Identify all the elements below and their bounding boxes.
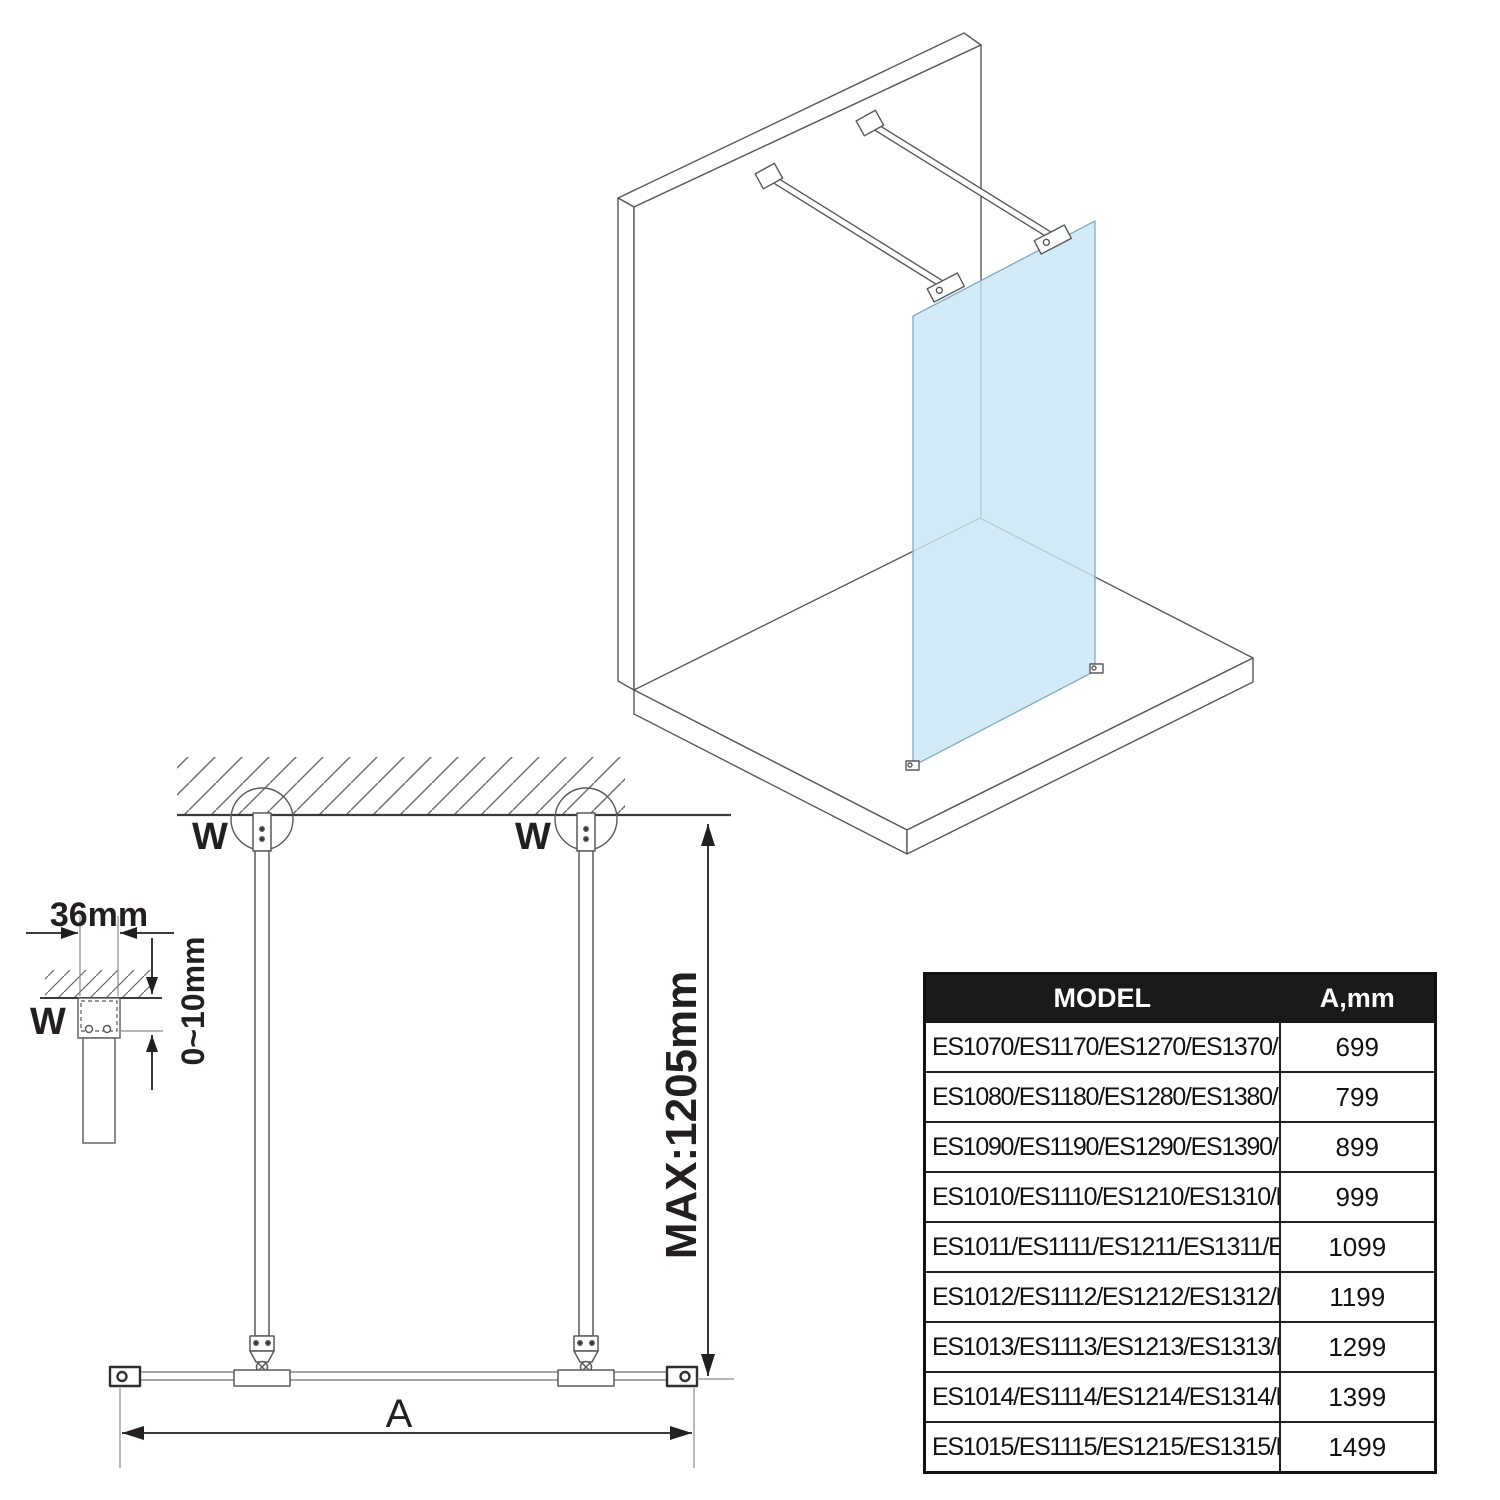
a-mm-cell: 1399	[1280, 1372, 1436, 1422]
support-bar-right-plan	[574, 813, 598, 1373]
model-cell: ES1014/ES1114/ES1214/ES1314/ES1514	[925, 1372, 1280, 1422]
label-wall-marker-left: W	[192, 816, 228, 858]
wall-bracket-detail	[78, 998, 120, 1038]
glass-end-cap-left	[110, 1367, 140, 1386]
glass-foot-right-3d	[1090, 664, 1103, 673]
table-row: ES1013/ES1113/ES1213/ES1313/ES1513 1299	[925, 1322, 1436, 1372]
model-cell: ES1070/ES1170/ES1270/ES1370/ES1570	[925, 1022, 1280, 1072]
a-mm-cell: 699	[1280, 1022, 1436, 1072]
model-cell: ES1090/ES1190/ES1290/ES1390/ES1590	[925, 1122, 1280, 1172]
label-bracket-gap: 0~10mm	[175, 937, 211, 1066]
table-row: ES1015/ES1115/ES1215/ES1315/ES1515 1499	[925, 1422, 1436, 1473]
table-row: ES1014/ES1114/ES1214/ES1314/ES1514 1399	[925, 1372, 1436, 1422]
label-wall-marker-right: W	[515, 816, 551, 858]
support-bar-detail	[83, 1038, 115, 1143]
table-row: ES1011/ES1111/ES1211/ES1311/ES1511 1099	[925, 1222, 1436, 1272]
model-cell: ES1010/ES1110/ES1210/ES1310/ES1510	[925, 1172, 1280, 1222]
a-mm-cell: 1499	[1280, 1422, 1436, 1473]
label-bracket-width: 36mm	[50, 896, 148, 934]
technical-drawing-page: 36mm 0~10mm W W W MAX:1205mm A MODEL A,m…	[0, 0, 1500, 1500]
label-max-bar-length: MAX:1205mm	[657, 971, 706, 1260]
model-cell: ES1012/ES1112/ES1212/ES1312/ES1512	[925, 1272, 1280, 1322]
glass-clamp-left-plan	[234, 1370, 290, 1386]
table-header-row: MODEL A,mm	[925, 974, 1436, 1023]
support-bar-left-plan	[250, 813, 274, 1373]
glass-foot-left-3d	[906, 761, 919, 770]
glass-clamp-right-plan	[558, 1370, 614, 1386]
a-mm-cell: 1199	[1280, 1272, 1436, 1322]
model-size-table: MODEL A,mm ES1070/ES1170/ES1270/ES1370/E…	[923, 972, 1434, 1474]
model-cell: ES1080/ES1180/ES1280/ES1380/ES1580	[925, 1072, 1280, 1122]
table-header-a-mm: A,mm	[1280, 974, 1436, 1023]
isometric-view	[618, 33, 1253, 854]
table-row: ES1090/ES1190/ES1290/ES1390/ES1590 899	[925, 1122, 1436, 1172]
glass-panel-3d	[913, 221, 1095, 766]
model-cell: ES1011/ES1111/ES1211/ES1311/ES1511	[925, 1222, 1280, 1272]
table-row: ES1012/ES1112/ES1212/ES1312/ES1512 1199	[925, 1272, 1436, 1322]
a-mm-cell: 1099	[1280, 1222, 1436, 1272]
a-mm-cell: 1299	[1280, 1322, 1436, 1372]
model-cell: ES1013/ES1113/ES1213/ES1313/ES1513	[925, 1322, 1280, 1372]
model-cell: ES1015/ES1115/ES1215/ES1315/ES1515	[925, 1422, 1280, 1473]
wall-hatch-detail	[45, 970, 153, 998]
table-row: ES1010/ES1110/ES1210/ES1310/ES1510 999	[925, 1172, 1436, 1222]
table-row: ES1080/ES1180/ES1280/ES1380/ES1580 799	[925, 1072, 1436, 1122]
a-mm-cell: 899	[1280, 1122, 1436, 1172]
table-row: ES1070/ES1170/ES1270/ES1370/ES1570 699	[925, 1022, 1436, 1072]
label-wall-marker-detail: W	[30, 1001, 66, 1043]
plan-view	[110, 757, 734, 1468]
table-header-model: MODEL	[925, 974, 1280, 1023]
a-mm-cell: 999	[1280, 1172, 1436, 1222]
label-glass-width: A	[386, 1392, 413, 1436]
glass-end-cap-right	[667, 1367, 697, 1386]
a-mm-cell: 799	[1280, 1072, 1436, 1122]
